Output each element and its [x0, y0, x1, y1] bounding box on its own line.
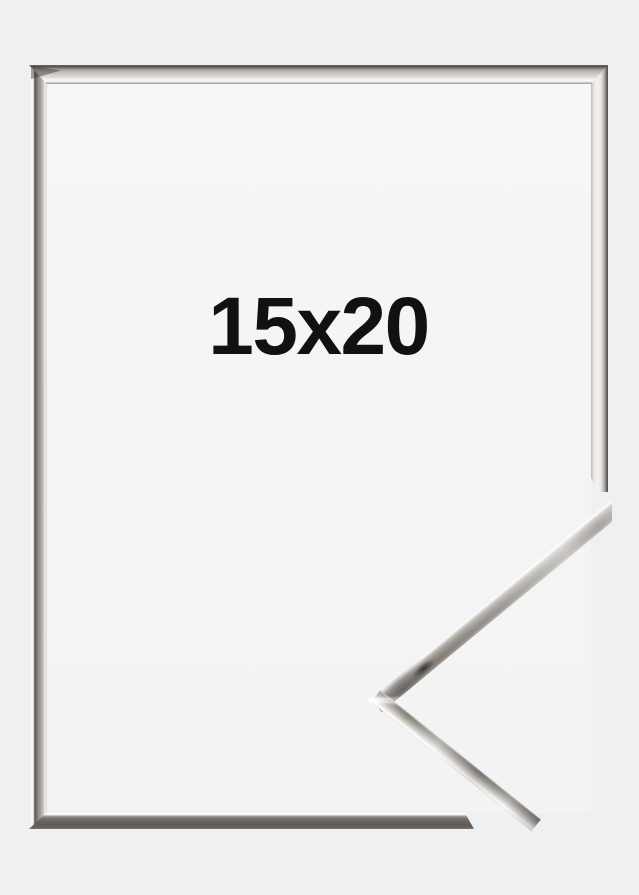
corner-sample-upper-arm [371, 501, 621, 712]
reflection-smudge [410, 656, 438, 682]
corner-sample-lower-arm [371, 690, 541, 831]
corner-sample [0, 0, 639, 895]
product-photo: 15x20 [0, 0, 639, 895]
